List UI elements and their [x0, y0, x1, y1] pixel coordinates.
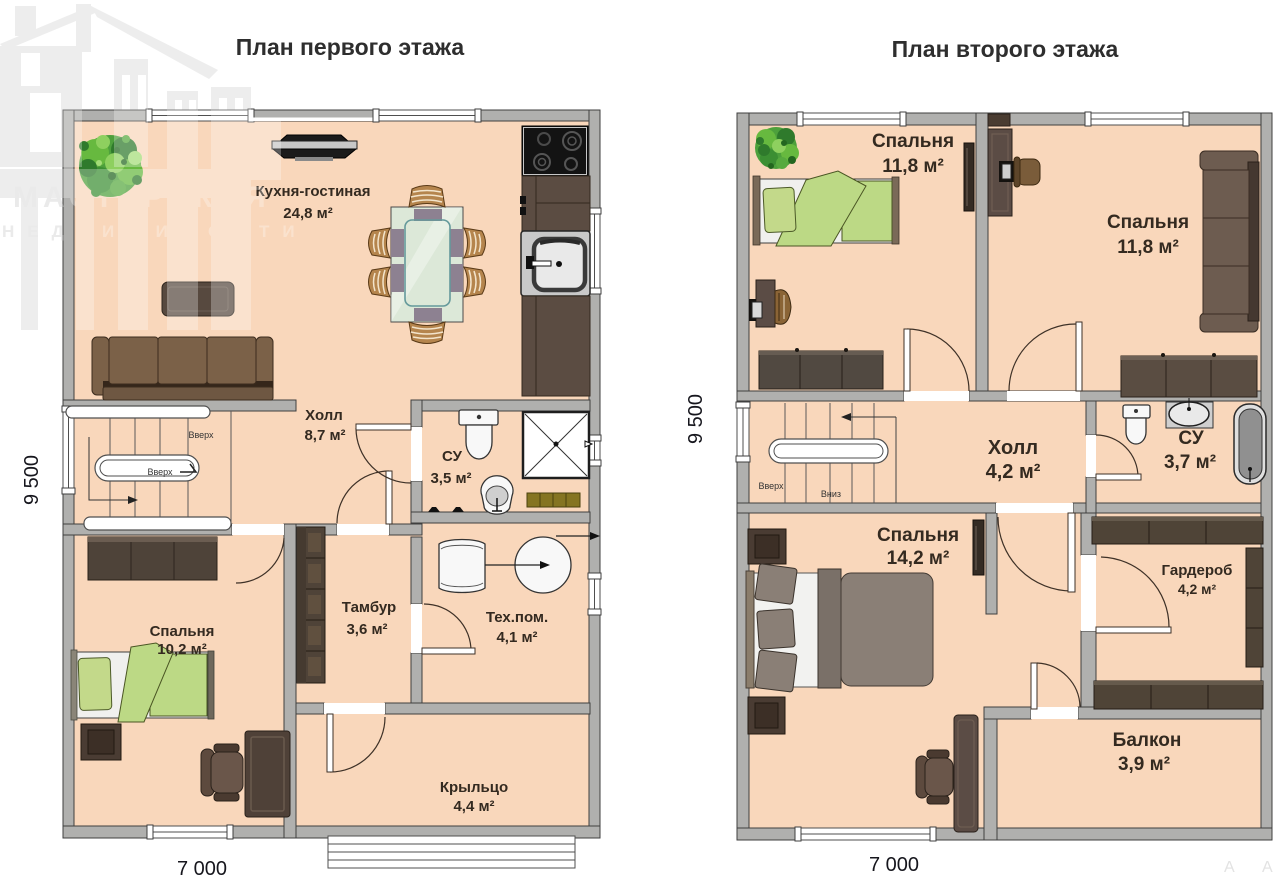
svg-text:9 500: 9 500	[21, 455, 43, 505]
svg-text:4,1 м²: 4,1 м²	[496, 629, 537, 646]
svg-text:24,8 м²: 24,8 м²	[283, 205, 332, 222]
svg-text:СУ: СУ	[1178, 428, 1203, 449]
svg-text:Кухня-гостиная: Кухня-гостиная	[256, 183, 371, 200]
svg-text:3,5 м²: 3,5 м²	[430, 470, 471, 487]
svg-text:4,4 м²: 4,4 м²	[453, 798, 494, 815]
svg-text:Вниз: Вниз	[821, 489, 841, 499]
svg-text:3,6 м²: 3,6 м²	[346, 621, 387, 638]
svg-text:14,2 м²: 14,2 м²	[887, 548, 950, 569]
svg-text:7 000: 7 000	[869, 854, 919, 876]
svg-text:3,9 м²: 3,9 м²	[1118, 754, 1170, 775]
svg-text:План первого этажа: План первого этажа	[236, 34, 465, 60]
svg-text:НЕДВИЖИМОСТИ: НЕДВИЖИМОСТИ	[2, 222, 308, 241]
svg-text:9 500: 9 500	[685, 394, 707, 444]
svg-text:А: А	[1262, 859, 1273, 876]
svg-text:Холл: Холл	[305, 407, 343, 424]
svg-text:А: А	[1224, 859, 1235, 876]
svg-text:11,8 м²: 11,8 м²	[882, 156, 944, 177]
svg-text:План второго этажа: План второго этажа	[892, 36, 1119, 62]
svg-text:8,7 м²: 8,7 м²	[304, 427, 345, 444]
svg-text:СУ: СУ	[442, 448, 463, 465]
svg-text:Тех.пом.: Тех.пом.	[486, 609, 548, 626]
svg-text:Холл: Холл	[988, 437, 1038, 459]
svg-text:МАСТЕРСКАЯ: МАСТЕРСКАЯ	[13, 181, 271, 214]
svg-text:7 000: 7 000	[177, 858, 227, 880]
svg-text:Вверх: Вверх	[758, 481, 784, 491]
svg-text:Вверх: Вверх	[188, 430, 214, 440]
svg-text:Балкон: Балкон	[1113, 730, 1182, 751]
svg-text:Вверх: Вверх	[147, 467, 173, 477]
svg-text:Спальня: Спальня	[872, 131, 954, 152]
svg-text:Спальня: Спальня	[1107, 212, 1189, 233]
svg-text:11,8 м²: 11,8 м²	[1117, 237, 1179, 258]
svg-text:4,2 м²: 4,2 м²	[986, 461, 1041, 483]
svg-text:3,7 м²: 3,7 м²	[1164, 452, 1216, 473]
svg-text:Тамбур: Тамбур	[342, 599, 396, 616]
svg-text:Спальня: Спальня	[877, 525, 959, 546]
svg-text:4,2 м²: 4,2 м²	[1178, 581, 1217, 597]
svg-text:Спальня: Спальня	[150, 623, 215, 640]
svg-text:Гардероб: Гардероб	[1162, 562, 1233, 579]
svg-text:10,2 м²: 10,2 м²	[157, 641, 206, 658]
svg-text:Крыльцо: Крыльцо	[440, 779, 508, 796]
